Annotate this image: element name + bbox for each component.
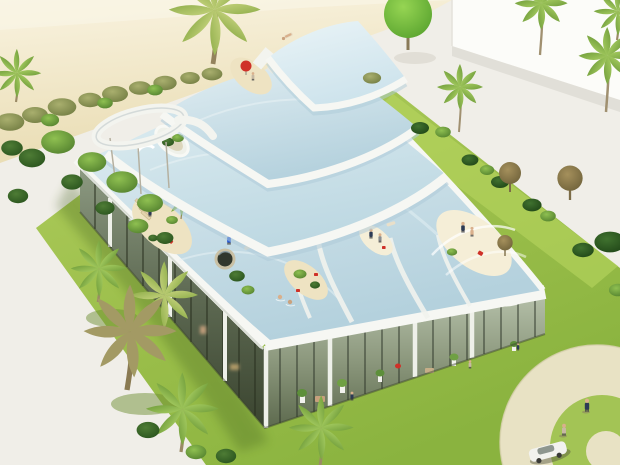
islet-shrub: [310, 281, 320, 288]
shrub: [480, 165, 494, 175]
beach-person: [470, 227, 473, 237]
red-deck-chair: [296, 289, 300, 292]
beach-shrub: [41, 114, 59, 127]
islet-shrub: [294, 270, 307, 279]
hedge: [411, 122, 429, 134]
island-shrub: [166, 216, 178, 224]
deck-person: [378, 233, 381, 242]
shrub: [137, 422, 160, 438]
patio-person: [252, 72, 255, 80]
shrub: [128, 219, 149, 233]
shrub: [216, 449, 236, 463]
beach-shrub: [97, 98, 113, 109]
shrub: [106, 171, 137, 193]
hedge: [462, 154, 479, 165]
interior-red-flowers: [395, 364, 401, 369]
beach-shrub: [147, 85, 163, 96]
shrub: [229, 270, 245, 281]
shrub: [95, 201, 114, 215]
red-deck-chair: [314, 273, 318, 276]
shrub: [242, 286, 255, 295]
beach-person: [461, 222, 465, 233]
shrub: [61, 174, 83, 189]
interior-person: [469, 360, 472, 368]
beach-shrub: [129, 81, 151, 95]
architectural-render-scene: [0, 0, 620, 465]
shrub: [8, 189, 28, 203]
terrace-ledge-shrub: [363, 72, 381, 83]
shrub: [41, 130, 75, 153]
red-deck-chair: [382, 246, 386, 249]
shrub: [137, 194, 163, 212]
shrub: [157, 232, 174, 244]
round-spa: [215, 249, 236, 270]
hedge: [572, 243, 594, 257]
plaza-person: [585, 399, 589, 412]
island-shrub: [148, 235, 158, 242]
shrub: [186, 445, 207, 459]
beach-shrub: [447, 248, 457, 255]
shrub: [435, 127, 451, 138]
scene-canvas: [0, 0, 620, 465]
beach-shrub: [180, 72, 200, 84]
beach-shrub: [202, 68, 223, 81]
plaza-person: [562, 424, 566, 436]
beach-shrub: [48, 98, 77, 116]
shrub: [1, 140, 23, 155]
shrub: [19, 149, 45, 168]
red-parasol: [241, 61, 252, 72]
shrub: [540, 211, 556, 222]
shrub: [78, 152, 107, 172]
hedge: [522, 199, 541, 212]
